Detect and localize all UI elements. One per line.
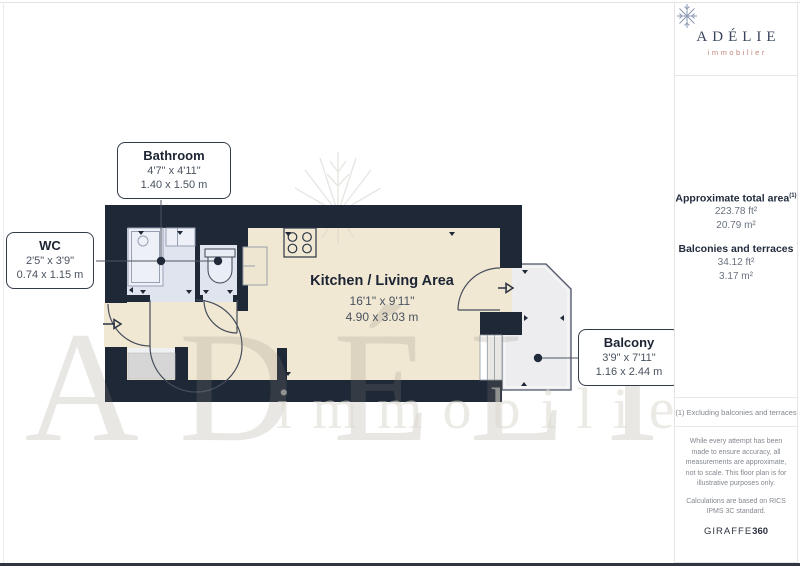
disclaimer-text: While every attempt has been made to ens…	[680, 437, 792, 490]
kitchen-unit	[243, 247, 267, 285]
balcony-imperial: 3'9" x 7'11"	[583, 351, 675, 365]
wc-metric: 0.74 x 1.15 m	[11, 268, 89, 282]
page-left-border	[3, 2, 4, 563]
total-area-sqm: 20.79 m²	[716, 219, 755, 233]
balcony-name: Balcony	[583, 335, 675, 351]
wc-imperial: 2'5" x 3'9"	[11, 254, 89, 268]
balcony-label: Balcony 3'9" x 7'11" 1.16 x 2.44 m	[578, 329, 680, 386]
bathroom-imperial: 4'7" x 4'11"	[122, 164, 226, 178]
kitchen-metric: 4.90 x 3.03 m	[282, 309, 482, 325]
balconies-heading: Balconies and terraces	[679, 242, 794, 256]
floor-plan-page: ADÉLIE immobilier Bathroom 4'7" x 4'11" …	[0, 0, 800, 566]
disclaimer-section: While every attempt has been made to ens…	[675, 427, 797, 562]
agency-logo: ADÉLIE immobilier	[675, 3, 797, 76]
total-area-sqft: 223.78 ft²	[715, 205, 757, 219]
agency-tagline: immobilier	[705, 48, 767, 57]
sink	[166, 228, 195, 246]
wc-callout-dot	[214, 257, 222, 265]
footnote-ref: (1)	[789, 193, 796, 199]
area-summary: Approximate total area(1) 223.78 ft² 20.…	[675, 76, 797, 397]
agency-brand-name: ADÉLIE	[691, 29, 780, 46]
balconies-sqm: 3.17 m²	[719, 270, 753, 284]
info-sidebar: ADÉLIE immobilier Approximate total area…	[674, 2, 798, 563]
giraffe360-credit: GIRAFFE360	[680, 525, 792, 539]
area-footnote: (1) Excluding balconies and terraces	[675, 397, 797, 427]
total-area-heading: Approximate total area(1)	[675, 189, 796, 206]
balconies-sqft: 34.12 ft²	[718, 256, 755, 270]
kitchen-living-label: Kitchen / Living Area 16'1" x 9'11" 4.90…	[282, 272, 482, 325]
snowflake-logo-icon	[675, 3, 699, 29]
bathroom-callout-dot	[157, 257, 165, 265]
page-top-border	[0, 2, 800, 3]
bathroom-label: Bathroom 4'7" x 4'11" 1.40 x 1.50 m	[117, 142, 231, 199]
kitchen-imperial: 16'1" x 9'11"	[282, 293, 482, 309]
shower	[128, 228, 163, 286]
kitchen-name: Kitchen / Living Area	[282, 272, 482, 290]
balcony-metric: 1.16 x 2.44 m	[583, 365, 675, 379]
bathroom-name: Bathroom	[122, 148, 226, 164]
standard-text: Calculations are based on RICS IPMS 3C s…	[680, 497, 792, 518]
bathroom-metric: 1.40 x 1.50 m	[122, 178, 226, 192]
wc-label: WC 2'5" x 3'9" 0.74 x 1.15 m	[6, 232, 94, 289]
wc-name: WC	[11, 238, 89, 254]
